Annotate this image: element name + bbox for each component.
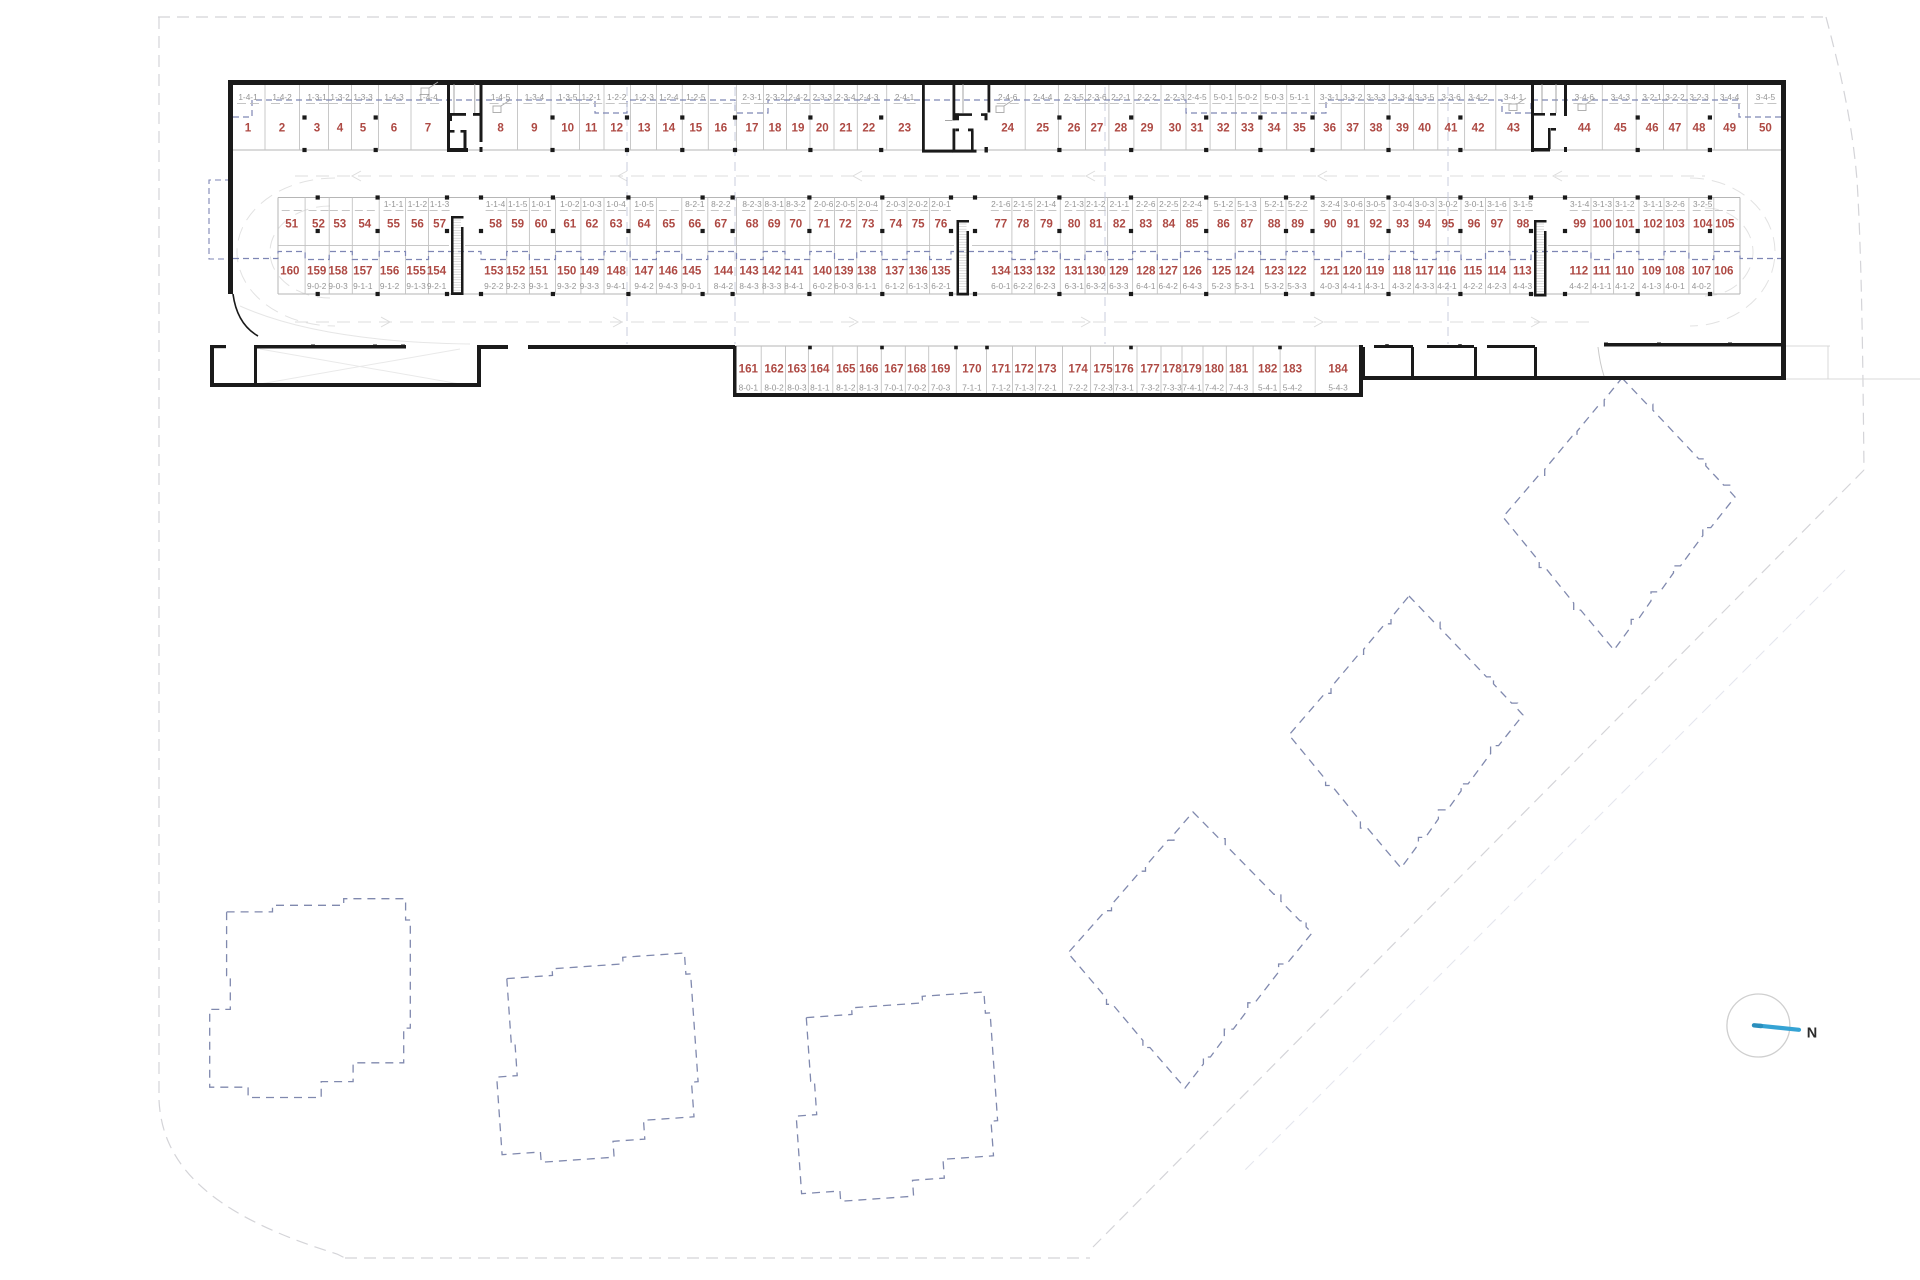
svg-text:5-0-1: 5-0-1	[1214, 92, 1234, 102]
svg-text:39: 39	[1396, 122, 1409, 135]
svg-text:3-1-2: 3-1-2	[1615, 199, 1635, 209]
svg-text:2-1-3: 2-1-3	[1065, 199, 1085, 209]
svg-text:89: 89	[1291, 217, 1304, 230]
svg-text:127: 127	[1159, 265, 1178, 278]
svg-text:108: 108	[1665, 265, 1685, 278]
svg-text:9-4-3: 9-4-3	[659, 281, 679, 291]
svg-text:62: 62	[585, 217, 598, 230]
svg-text:4-1-2: 4-1-2	[1615, 281, 1635, 291]
svg-text:9-3-3: 9-3-3	[580, 281, 600, 291]
svg-text:9-3-1: 9-3-1	[529, 281, 549, 291]
svg-text:7-0-2: 7-0-2	[907, 383, 927, 393]
svg-text:2-4-2: 2-4-2	[788, 92, 808, 102]
svg-text:128: 128	[1136, 265, 1156, 278]
svg-text:4-2-1: 4-2-1	[1437, 281, 1457, 291]
svg-text:2-2-1: 2-2-1	[1111, 92, 1131, 102]
svg-text:3-1-6: 3-1-6	[1487, 199, 1507, 209]
svg-text:43: 43	[1507, 122, 1520, 135]
svg-text:165: 165	[836, 362, 856, 375]
svg-text:163: 163	[787, 362, 807, 375]
svg-text:2: 2	[279, 122, 285, 135]
svg-text:4-3-3: 4-3-3	[1415, 281, 1435, 291]
svg-text:118: 118	[1392, 265, 1411, 278]
svg-text:168: 168	[907, 362, 927, 375]
svg-text:7-1-2: 7-1-2	[991, 383, 1011, 393]
svg-text:13: 13	[638, 122, 651, 135]
svg-text:3-3-4: 3-3-4	[1393, 92, 1413, 102]
svg-text:4: 4	[337, 122, 344, 135]
svg-text:1-3-5: 1-3-5	[558, 92, 578, 102]
svg-text:7-1-3: 7-1-3	[1014, 383, 1034, 393]
svg-text:11: 11	[585, 122, 598, 135]
svg-text:6-1-1: 6-1-1	[857, 281, 877, 291]
svg-text:1-3-3: 1-3-3	[353, 92, 373, 102]
svg-text:9-4-1: 9-4-1	[606, 281, 626, 291]
svg-text:100: 100	[1593, 217, 1612, 230]
svg-text:3-2-6: 3-2-6	[1665, 199, 1685, 209]
svg-text:35: 35	[1293, 122, 1306, 135]
svg-text:5-4-1: 5-4-1	[1258, 383, 1278, 393]
svg-text:101: 101	[1615, 217, 1635, 230]
svg-text:104: 104	[1693, 217, 1713, 230]
svg-text:7-2-3: 7-2-3	[1093, 383, 1113, 393]
svg-text:138: 138	[857, 265, 877, 278]
svg-text:8-2-2: 8-2-2	[711, 199, 731, 209]
svg-text:8-0-1: 8-0-1	[739, 383, 759, 393]
svg-text:107: 107	[1692, 265, 1711, 278]
svg-text:3-0-1: 3-0-1	[1464, 199, 1484, 209]
svg-text:87: 87	[1240, 217, 1253, 230]
svg-text:7-4-1: 7-4-1	[1182, 383, 1202, 393]
svg-text:2-0-1: 2-0-1	[931, 199, 951, 209]
svg-text:4-2-3: 4-2-3	[1487, 281, 1507, 291]
svg-text:59: 59	[511, 217, 524, 230]
svg-text:9-2-1: 9-2-1	[427, 281, 447, 291]
svg-text:9-0-1: 9-0-1	[682, 281, 702, 291]
svg-text:121: 121	[1320, 265, 1340, 278]
svg-text:28: 28	[1114, 122, 1127, 135]
svg-text:6-3-2: 6-3-2	[1086, 281, 1106, 291]
svg-text:80: 80	[1068, 217, 1081, 230]
svg-text:1-4-4: 1-4-4	[418, 92, 438, 102]
svg-text:3-0-3: 3-0-3	[1415, 199, 1435, 209]
svg-text:5-3-1: 5-3-1	[1235, 281, 1255, 291]
svg-text:102: 102	[1643, 217, 1662, 230]
svg-text:2-3-5: 2-3-5	[1064, 92, 1084, 102]
svg-text:6-4-2: 6-4-2	[1159, 281, 1179, 291]
svg-text:36: 36	[1323, 122, 1336, 135]
svg-text:5-0-2: 5-0-2	[1238, 92, 1258, 102]
svg-text:4-3-2: 4-3-2	[1392, 281, 1412, 291]
svg-text:1-0-3: 1-0-3	[582, 199, 602, 209]
svg-text:30: 30	[1169, 122, 1182, 135]
svg-text:29: 29	[1141, 122, 1154, 135]
svg-text:9-2-2: 9-2-2	[484, 281, 504, 291]
svg-text:N: N	[1807, 1026, 1817, 1042]
svg-text:2-3-6: 2-3-6	[1087, 92, 1107, 102]
svg-text:5-2-2: 5-2-2	[1288, 199, 1308, 209]
svg-text:166: 166	[859, 362, 879, 375]
svg-text:2-4-5: 2-4-5	[1187, 92, 1207, 102]
svg-text:7-0-1: 7-0-1	[884, 383, 904, 393]
svg-text:7-0-3: 7-0-3	[931, 383, 951, 393]
svg-text:112: 112	[1570, 265, 1589, 278]
svg-text:2-1-5: 2-1-5	[1013, 199, 1033, 209]
svg-text:2-0-2: 2-0-2	[909, 199, 929, 209]
svg-text:57: 57	[433, 217, 446, 230]
svg-text:8-1-3: 8-1-3	[859, 383, 879, 393]
svg-text:1-1-3: 1-1-3	[430, 199, 450, 209]
svg-text:1-2-3: 1-2-3	[635, 92, 655, 102]
svg-text:154: 154	[427, 265, 447, 278]
svg-text:3-4-1: 3-4-1	[1504, 92, 1524, 102]
svg-text:126: 126	[1183, 265, 1203, 278]
svg-text:150: 150	[557, 265, 576, 278]
svg-text:136: 136	[909, 265, 929, 278]
svg-text:91: 91	[1347, 217, 1360, 230]
svg-text:4-3-1: 4-3-1	[1365, 281, 1385, 291]
svg-text:119: 119	[1366, 265, 1385, 278]
svg-text:16: 16	[714, 122, 727, 135]
svg-text:38: 38	[1370, 122, 1383, 135]
svg-text:61: 61	[563, 217, 576, 230]
svg-text:3-1-3: 3-1-3	[1593, 199, 1613, 209]
svg-text:120: 120	[1343, 265, 1362, 278]
svg-text:3-0-5: 3-0-5	[1366, 199, 1386, 209]
svg-text:2-2-3: 2-2-3	[1165, 92, 1185, 102]
svg-text:19: 19	[792, 122, 805, 135]
svg-text:3-1-1: 3-1-1	[1643, 199, 1663, 209]
svg-text:5-2-1: 5-2-1	[1265, 199, 1285, 209]
svg-text:167: 167	[884, 362, 903, 375]
svg-text:2-4-3: 2-4-3	[859, 92, 879, 102]
svg-text:1-0-5: 1-0-5	[634, 199, 654, 209]
svg-text:37: 37	[1346, 122, 1359, 135]
svg-text:157: 157	[353, 265, 372, 278]
svg-text:81: 81	[1089, 217, 1102, 230]
svg-text:88: 88	[1268, 217, 1281, 230]
svg-text:1-1-5: 1-1-5	[508, 199, 528, 209]
svg-text:2-3-3: 2-3-3	[813, 92, 833, 102]
svg-text:2-4-6: 2-4-6	[998, 92, 1018, 102]
svg-text:9-1-3: 9-1-3	[406, 281, 426, 291]
svg-text:105: 105	[1715, 217, 1735, 230]
svg-text:2-2-2: 2-2-2	[1137, 92, 1157, 102]
svg-text:149: 149	[580, 265, 600, 278]
svg-text:42: 42	[1472, 122, 1485, 135]
svg-text:72: 72	[839, 217, 852, 230]
svg-text:179: 179	[1182, 362, 1202, 375]
svg-text:4-4-1: 4-4-1	[1343, 281, 1363, 291]
svg-text:155: 155	[406, 265, 426, 278]
svg-text:94: 94	[1418, 217, 1431, 230]
svg-text:117: 117	[1415, 265, 1434, 278]
svg-text:8-1-1: 8-1-1	[810, 383, 830, 393]
svg-text:130: 130	[1086, 265, 1105, 278]
svg-text:158: 158	[328, 265, 348, 278]
svg-text:9-3-2: 9-3-2	[557, 281, 577, 291]
svg-text:2-0-4: 2-0-4	[858, 199, 878, 209]
svg-text:6-0-1: 6-0-1	[991, 281, 1011, 291]
svg-text:7-2-2: 7-2-2	[1068, 383, 1088, 393]
svg-text:9-0-3: 9-0-3	[328, 281, 348, 291]
svg-text:4-4-2: 4-4-2	[1569, 281, 1589, 291]
svg-text:66: 66	[688, 217, 701, 230]
svg-text:6-3-1: 6-3-1	[1065, 281, 1085, 291]
svg-text:1-4-3: 1-4-3	[384, 92, 404, 102]
svg-text:8-4-2: 8-4-2	[714, 281, 734, 291]
svg-text:50: 50	[1759, 122, 1772, 135]
svg-text:4-0-1: 4-0-1	[1665, 281, 1685, 291]
svg-text:51: 51	[285, 217, 298, 230]
svg-text:49: 49	[1723, 122, 1736, 135]
svg-text:132: 132	[1036, 265, 1055, 278]
svg-text:6-0-3: 6-0-3	[834, 281, 854, 291]
svg-text:116: 116	[1438, 265, 1457, 278]
svg-text:71: 71	[817, 217, 830, 230]
svg-text:6-4-1: 6-4-1	[1136, 281, 1156, 291]
svg-text:153: 153	[484, 265, 504, 278]
svg-text:8: 8	[497, 122, 504, 135]
svg-text:5-4-3: 5-4-3	[1328, 383, 1348, 393]
svg-text:173: 173	[1037, 362, 1057, 375]
svg-text:3-4-5: 3-4-5	[1756, 92, 1776, 102]
svg-text:7: 7	[425, 122, 431, 135]
svg-text:7-1-1: 7-1-1	[962, 383, 982, 393]
svg-text:5-1-2: 5-1-2	[1214, 199, 1234, 209]
svg-text:1-4-5: 1-4-5	[491, 92, 511, 102]
svg-text:1-2-5: 1-2-5	[686, 92, 706, 102]
svg-text:7-3-2: 7-3-2	[1140, 383, 1160, 393]
svg-text:159: 159	[307, 265, 327, 278]
svg-text:2-3-1: 2-3-1	[742, 92, 762, 102]
svg-text:68: 68	[746, 217, 759, 230]
svg-text:162: 162	[764, 362, 783, 375]
svg-text:3-2-2: 3-2-2	[1665, 92, 1685, 102]
svg-text:41: 41	[1445, 122, 1458, 135]
svg-text:137: 137	[885, 265, 904, 278]
svg-text:93: 93	[1396, 217, 1409, 230]
svg-text:3-4-4: 3-4-4	[1720, 92, 1740, 102]
svg-text:160: 160	[280, 265, 299, 278]
svg-text:122: 122	[1287, 265, 1306, 278]
svg-text:1-0-4: 1-0-4	[606, 199, 626, 209]
svg-text:25: 25	[1036, 122, 1049, 135]
svg-text:4-0-3: 4-0-3	[1320, 281, 1340, 291]
svg-text:5-2-3: 5-2-3	[1212, 281, 1232, 291]
svg-text:5-3-2: 5-3-2	[1265, 281, 1285, 291]
svg-text:161: 161	[739, 362, 759, 375]
svg-text:33: 33	[1241, 122, 1254, 135]
svg-text:8-3-2: 8-3-2	[786, 199, 806, 209]
svg-text:65: 65	[662, 217, 675, 230]
svg-text:8-0-2: 8-0-2	[764, 383, 784, 393]
svg-text:106: 106	[1714, 265, 1734, 278]
svg-text:48: 48	[1693, 122, 1706, 135]
svg-text:3-3-6: 3-3-6	[1441, 92, 1461, 102]
svg-text:69: 69	[768, 217, 781, 230]
svg-text:148: 148	[606, 265, 626, 278]
svg-text:3-4-2: 3-4-2	[1468, 92, 1488, 102]
svg-text:6-3-3: 6-3-3	[1109, 281, 1129, 291]
svg-text:110: 110	[1615, 265, 1634, 278]
svg-text:2-2-6: 2-2-6	[1136, 199, 1156, 209]
svg-text:3-4-6: 3-4-6	[1575, 92, 1595, 102]
svg-text:90: 90	[1324, 217, 1337, 230]
svg-text:2-3-4: 2-3-4	[836, 92, 856, 102]
svg-text:78: 78	[1016, 217, 1029, 230]
svg-text:53: 53	[333, 217, 346, 230]
svg-text:8-1-2: 8-1-2	[836, 383, 856, 393]
svg-text:2-0-5: 2-0-5	[836, 199, 856, 209]
svg-text:151: 151	[529, 265, 549, 278]
svg-text:85: 85	[1186, 217, 1199, 230]
svg-text:7-4-2: 7-4-2	[1205, 383, 1225, 393]
svg-text:2-0-6: 2-0-6	[814, 199, 834, 209]
svg-text:1-3-4: 1-3-4	[525, 92, 545, 102]
svg-text:1: 1	[245, 122, 252, 135]
svg-text:6-2-2: 6-2-2	[1013, 281, 1033, 291]
svg-text:111: 111	[1593, 265, 1612, 278]
svg-text:170: 170	[962, 362, 981, 375]
svg-text:47: 47	[1668, 122, 1681, 135]
svg-text:140: 140	[813, 265, 832, 278]
svg-text:3-4-3: 3-4-3	[1611, 92, 1631, 102]
svg-text:79: 79	[1040, 217, 1053, 230]
svg-text:9: 9	[531, 122, 538, 135]
svg-text:55: 55	[387, 217, 400, 230]
svg-text:67: 67	[714, 217, 727, 230]
svg-text:3-2-1: 3-2-1	[1642, 92, 1662, 102]
svg-text:60: 60	[535, 217, 548, 230]
svg-text:86: 86	[1217, 217, 1230, 230]
svg-text:44: 44	[1578, 122, 1591, 135]
svg-text:6: 6	[391, 122, 398, 135]
svg-text:184: 184	[1328, 362, 1348, 375]
svg-text:8-4-1: 8-4-1	[784, 281, 804, 291]
svg-text:175: 175	[1093, 362, 1113, 375]
svg-text:144: 144	[714, 265, 734, 278]
svg-text:2-4-1: 2-4-1	[895, 92, 915, 102]
svg-text:9-1-2: 9-1-2	[380, 281, 400, 291]
svg-text:143: 143	[739, 265, 759, 278]
svg-text:10: 10	[561, 122, 574, 135]
svg-text:142: 142	[762, 265, 781, 278]
svg-text:2-1-2: 2-1-2	[1086, 199, 1106, 209]
svg-text:7-4-3: 7-4-3	[1229, 383, 1249, 393]
svg-text:32: 32	[1217, 122, 1230, 135]
svg-text:2-4-4: 2-4-4	[1033, 92, 1053, 102]
svg-text:9-4-2: 9-4-2	[634, 281, 654, 291]
svg-text:1-4-1: 1-4-1	[238, 92, 258, 102]
svg-text:5-4-2: 5-4-2	[1283, 383, 1303, 393]
svg-text:3-3-1: 3-3-1	[1320, 92, 1340, 102]
svg-text:1-1-2: 1-1-2	[408, 199, 428, 209]
svg-text:139: 139	[834, 265, 854, 278]
svg-text:2-3-2: 2-3-2	[765, 92, 785, 102]
svg-text:15: 15	[689, 122, 702, 135]
svg-text:1-2-4: 1-2-4	[659, 92, 679, 102]
svg-text:58: 58	[489, 217, 502, 230]
svg-text:6-2-3: 6-2-3	[1036, 281, 1056, 291]
svg-text:7-2-1: 7-2-1	[1037, 383, 1057, 393]
svg-text:9-0-2: 9-0-2	[307, 281, 327, 291]
svg-text:5-3-3: 5-3-3	[1287, 281, 1307, 291]
svg-text:9-1-1: 9-1-1	[353, 281, 373, 291]
svg-text:141: 141	[784, 265, 804, 278]
svg-text:169: 169	[931, 362, 951, 375]
svg-text:8-0-3: 8-0-3	[787, 383, 807, 393]
svg-text:75: 75	[912, 217, 925, 230]
svg-text:63: 63	[610, 217, 623, 230]
svg-text:2-2-4: 2-2-4	[1183, 199, 1203, 209]
svg-text:1-4-2: 1-4-2	[272, 92, 292, 102]
svg-text:152: 152	[506, 265, 525, 278]
svg-text:6-1-3: 6-1-3	[909, 281, 929, 291]
svg-text:4-0-2: 4-0-2	[1692, 281, 1712, 291]
svg-text:6-4-3: 6-4-3	[1183, 281, 1203, 291]
svg-text:97: 97	[1490, 217, 1503, 230]
svg-text:54: 54	[358, 217, 371, 230]
svg-text:3-2-5: 3-2-5	[1693, 199, 1713, 209]
svg-text:109: 109	[1642, 265, 1662, 278]
svg-text:92: 92	[1369, 217, 1382, 230]
svg-text:20: 20	[816, 122, 829, 135]
svg-text:3-2-4: 3-2-4	[1321, 199, 1341, 209]
svg-text:3-3-2: 3-3-2	[1343, 92, 1363, 102]
svg-text:64: 64	[638, 217, 651, 230]
svg-text:83: 83	[1139, 217, 1152, 230]
svg-text:40: 40	[1418, 122, 1431, 135]
svg-text:135: 135	[931, 265, 951, 278]
svg-text:2-1-4: 2-1-4	[1037, 199, 1057, 209]
svg-text:174: 174	[1068, 362, 1088, 375]
svg-text:178: 178	[1162, 362, 1182, 375]
svg-text:24: 24	[1001, 122, 1014, 135]
svg-text:3-0-6: 3-0-6	[1343, 199, 1363, 209]
svg-text:3-3-3: 3-3-3	[1366, 92, 1386, 102]
svg-text:7-3-1: 7-3-1	[1114, 383, 1134, 393]
svg-text:27: 27	[1090, 122, 1103, 135]
svg-text:156: 156	[380, 265, 400, 278]
svg-text:3-3-5: 3-3-5	[1415, 92, 1435, 102]
svg-text:52: 52	[312, 217, 325, 230]
svg-text:95: 95	[1441, 217, 1454, 230]
svg-text:84: 84	[1162, 217, 1175, 230]
svg-text:99: 99	[1573, 217, 1586, 230]
svg-text:18: 18	[769, 122, 782, 135]
svg-text:125: 125	[1212, 265, 1232, 278]
svg-text:12: 12	[610, 122, 623, 135]
svg-text:180: 180	[1205, 362, 1224, 375]
svg-text:8-3-3: 8-3-3	[762, 281, 782, 291]
svg-text:6-2-1: 6-2-1	[931, 281, 951, 291]
svg-text:8-4-3: 8-4-3	[739, 281, 759, 291]
svg-text:182: 182	[1258, 362, 1277, 375]
svg-text:8-2-3: 8-2-3	[742, 199, 762, 209]
svg-text:4-2-2: 4-2-2	[1463, 281, 1483, 291]
svg-text:9-2-3: 9-2-3	[506, 281, 526, 291]
svg-text:1-3-1: 1-3-1	[307, 92, 327, 102]
svg-text:1-2-2: 1-2-2	[607, 92, 627, 102]
svg-text:177: 177	[1140, 362, 1159, 375]
svg-text:4-1-3: 4-1-3	[1642, 281, 1662, 291]
svg-text:98: 98	[1516, 217, 1529, 230]
svg-text:134: 134	[991, 265, 1011, 278]
svg-text:1-2-1: 1-2-1	[582, 92, 602, 102]
svg-text:74: 74	[889, 217, 902, 230]
svg-text:124: 124	[1235, 265, 1255, 278]
